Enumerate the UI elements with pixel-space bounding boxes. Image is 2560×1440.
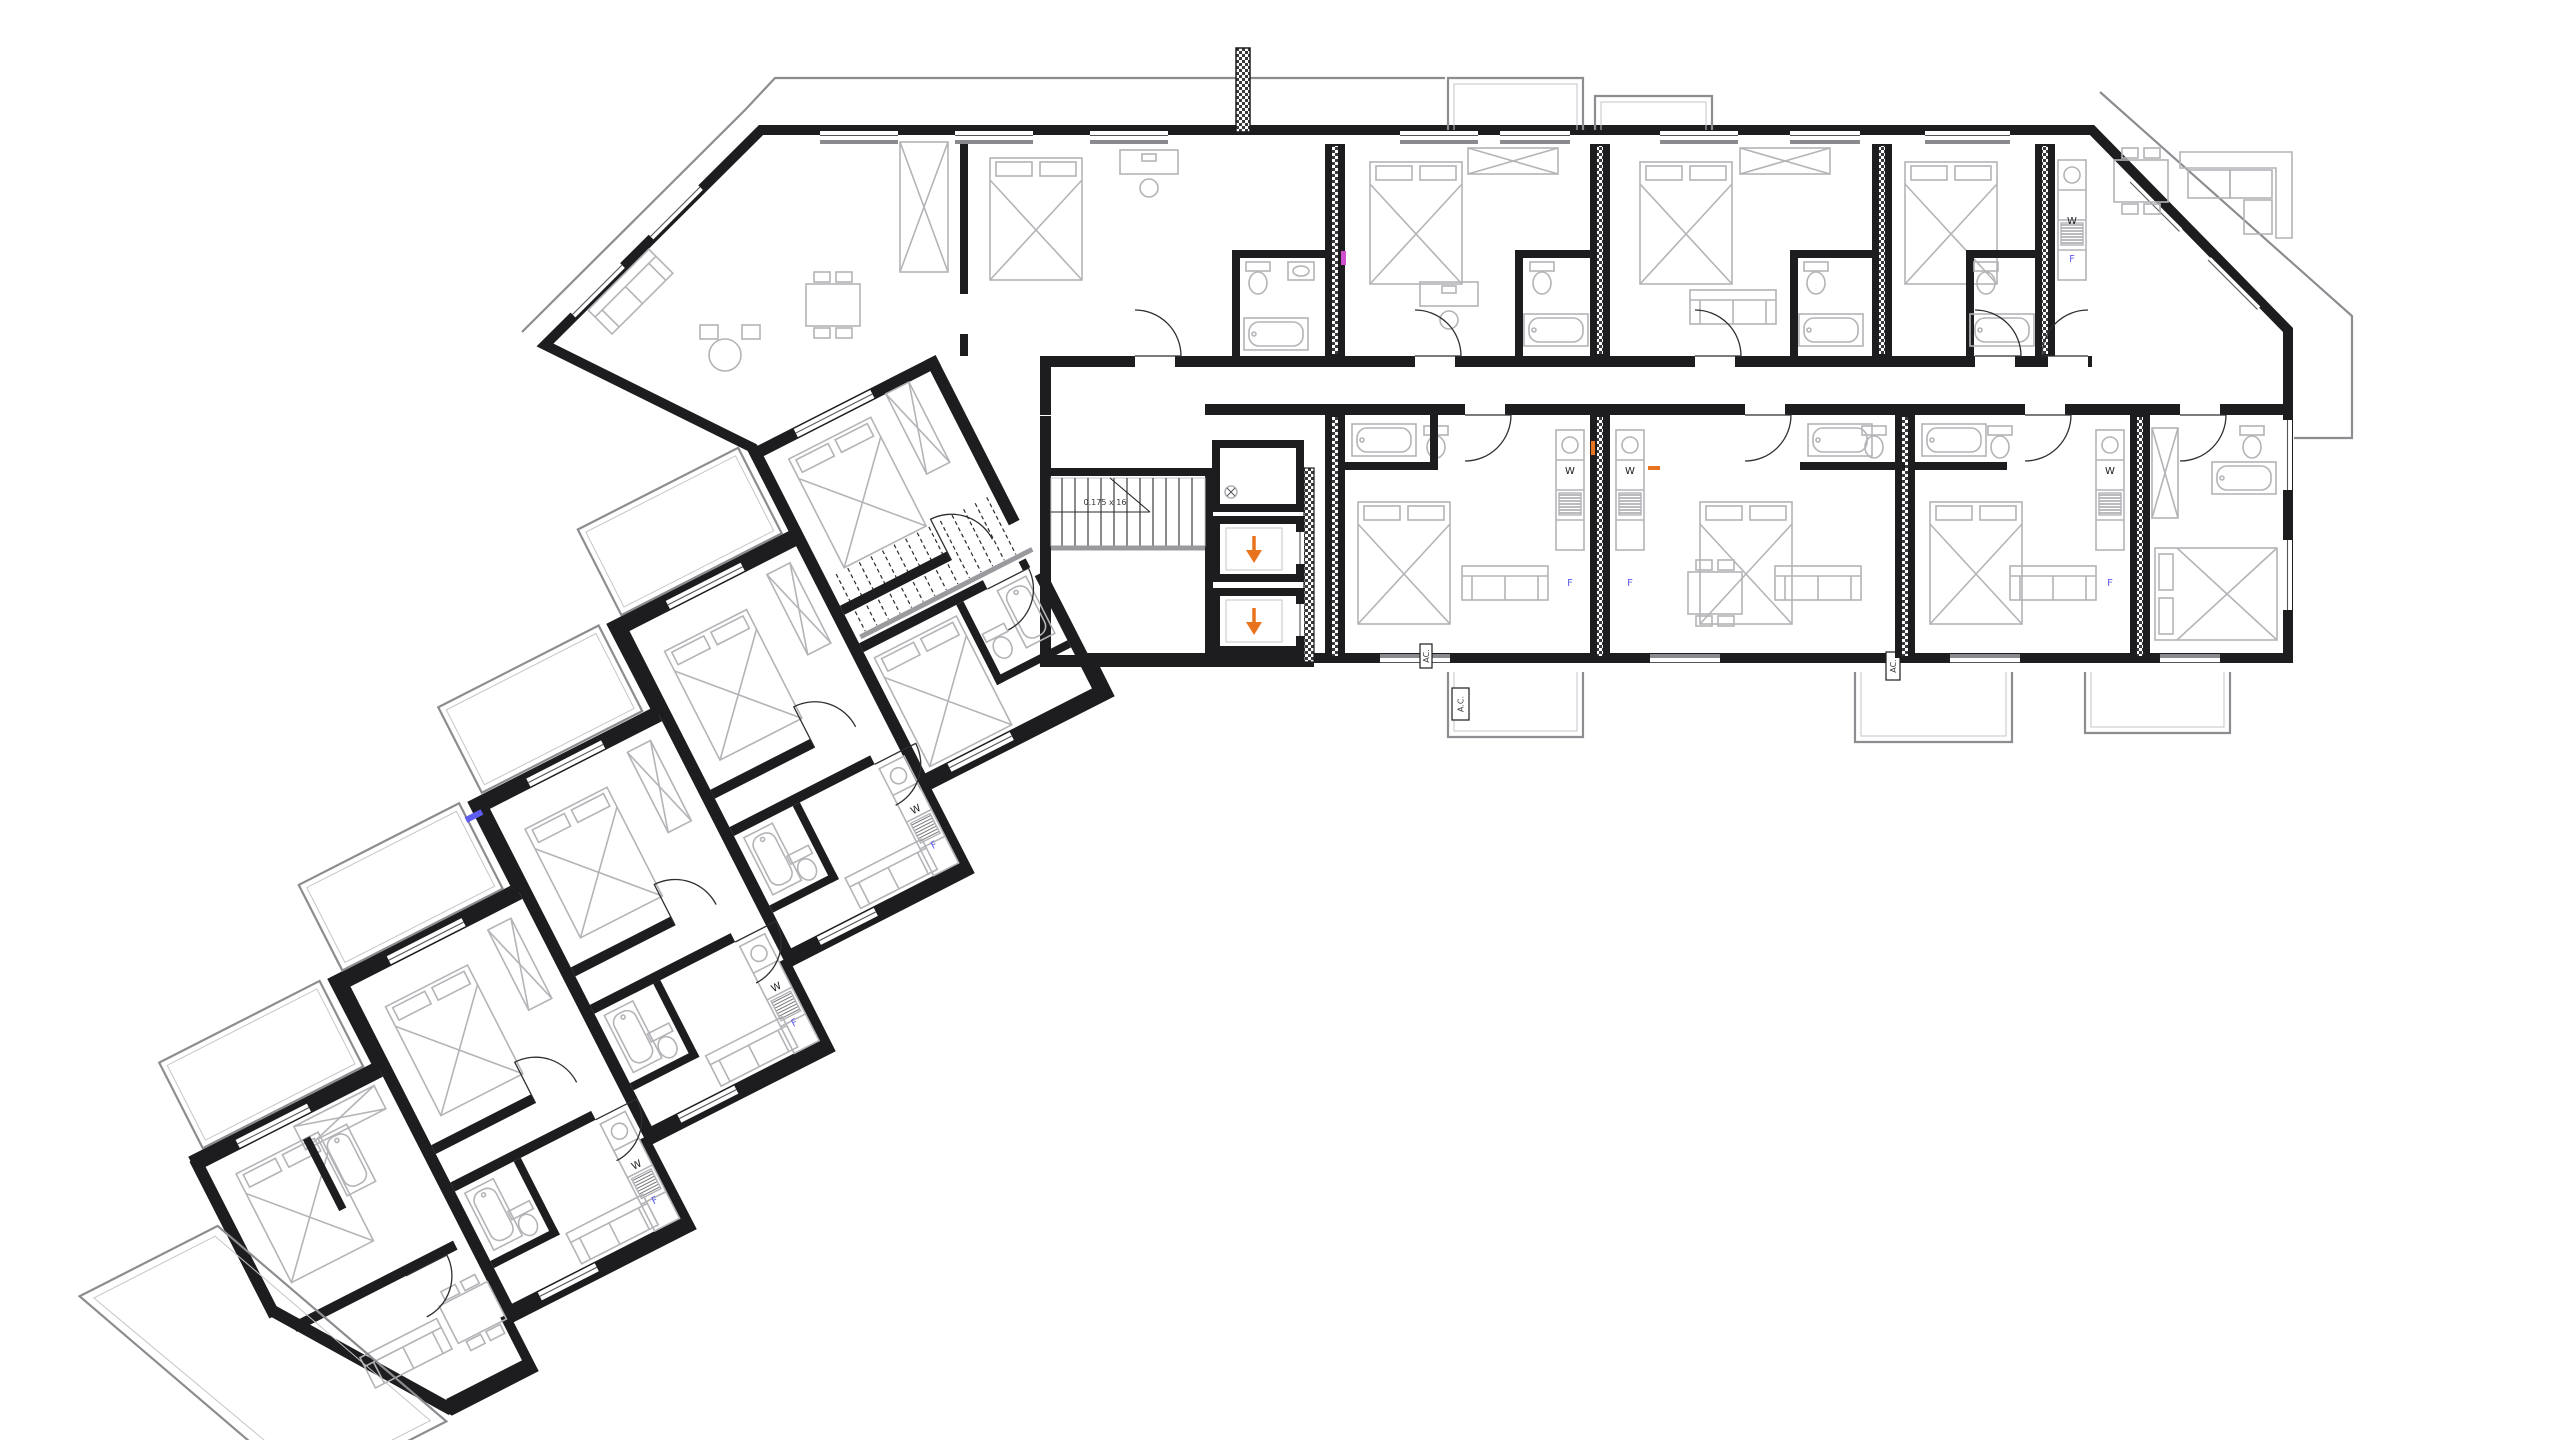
- balcony-bottom-1: A.C.: [1448, 672, 1583, 737]
- ac-label-small: AC.: [1889, 659, 1898, 672]
- washer-label: W: [1565, 466, 1575, 477]
- fridge-label: F: [2107, 578, 2113, 589]
- washer-label: W: [1625, 466, 1635, 477]
- orange-door-marker-2: [1648, 466, 1660, 470]
- balcony-top-1: [1448, 78, 1583, 130]
- washer-label: W: [2067, 216, 2077, 227]
- fridge-label: F: [2069, 254, 2075, 265]
- building: A.C. AC. AC.: [0, 48, 2352, 1440]
- washer-label: W: [2105, 466, 2115, 477]
- stair-dimension-label: 0.175 x 16: [1084, 498, 1127, 507]
- fridge-label: F: [1627, 578, 1633, 589]
- magenta-marker: [1341, 251, 1346, 265]
- floorplan-canvas: W F A.C. AC. AC.: [0, 0, 2560, 1440]
- balcony-bottom-2: [1855, 672, 2012, 742]
- balcony-bottom-3: [2085, 672, 2230, 733]
- roof-party-wall: [1236, 48, 1250, 132]
- ac-label-small-2: AC.: [1422, 649, 1431, 662]
- core-hatch-wall: [1304, 468, 1314, 662]
- floorplan-page: W F A.C. AC. AC.: [0, 0, 2560, 1440]
- balcony-top-2: [1595, 96, 1712, 130]
- fridge-label: F: [1567, 578, 1573, 589]
- ac-label: A.C.: [1457, 696, 1466, 712]
- orange-door-marker: [1591, 441, 1595, 455]
